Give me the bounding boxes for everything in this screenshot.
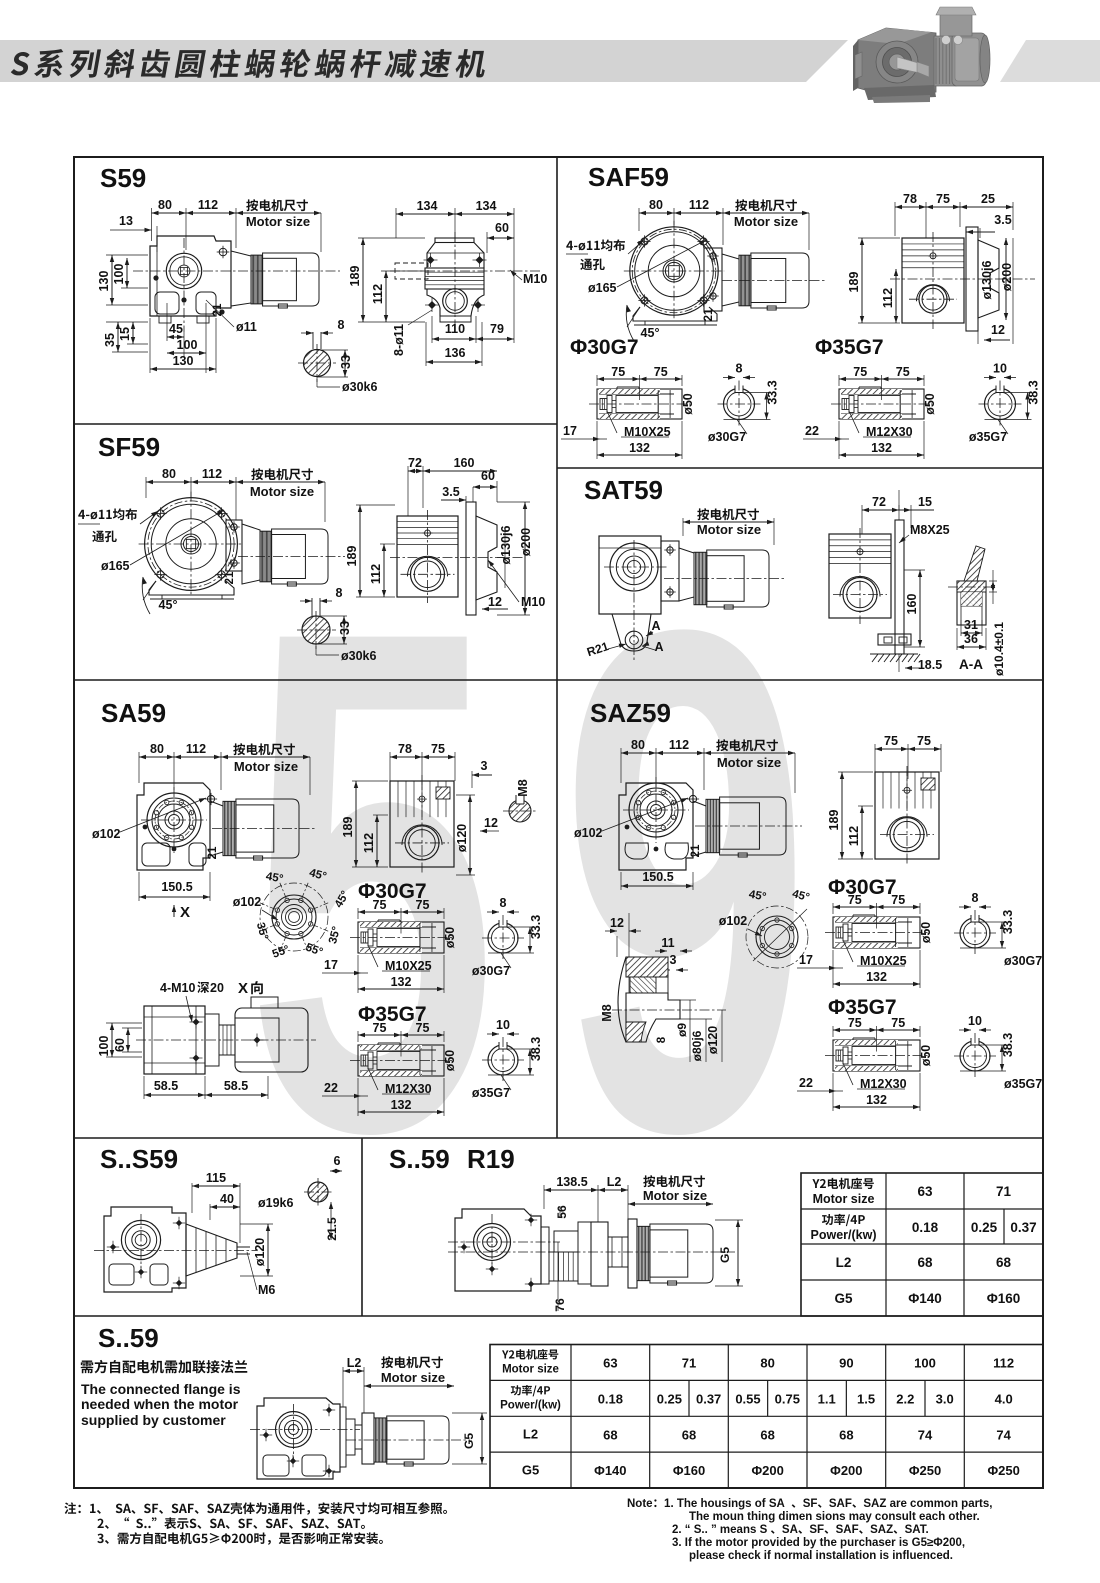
svg-text:132: 132 <box>871 441 892 455</box>
svg-text:Motor size: Motor size <box>234 759 298 774</box>
svg-text:60: 60 <box>113 1038 127 1052</box>
svg-text:21: 21 <box>703 308 715 321</box>
svg-text:2. “ S.. ” means S: 2. “ S.. ” means S <box>672 1524 768 1536</box>
svg-text:68: 68 <box>603 1427 617 1442</box>
svg-text:8: 8 <box>736 362 743 376</box>
svg-text:ø30k6: ø30k6 <box>342 380 377 394</box>
svg-text:40: 40 <box>220 1192 234 1206</box>
svg-text:4.0: 4.0 <box>995 1391 1013 1406</box>
svg-text:138.5: 138.5 <box>556 1175 587 1189</box>
svg-text:Φ140: Φ140 <box>594 1463 626 1478</box>
svg-text:75: 75 <box>891 1016 905 1030</box>
svg-text:please check if normal install: please check if normal installation is i… <box>689 1550 953 1562</box>
svg-text:12: 12 <box>484 816 498 830</box>
svg-text:8: 8 <box>500 896 507 910</box>
svg-text:21: 21 <box>212 303 224 316</box>
svg-text:132: 132 <box>866 970 887 984</box>
svg-text:Φ35G7: Φ35G7 <box>828 996 897 1019</box>
svg-text:72: 72 <box>872 495 886 509</box>
svg-text:112: 112 <box>669 738 689 752</box>
svg-text:110: 110 <box>445 322 465 336</box>
svg-text:71: 71 <box>996 1184 1012 1199</box>
svg-text:80: 80 <box>649 198 663 212</box>
svg-text:S..59: S..59 <box>98 1323 159 1353</box>
svg-text:L2: L2 <box>607 1175 622 1189</box>
svg-text:ø102: ø102 <box>719 914 748 928</box>
svg-text:189: 189 <box>341 817 355 838</box>
svg-text:Power/(kw): Power/(kw) <box>500 1399 561 1411</box>
svg-text:15: 15 <box>918 495 932 509</box>
svg-text:Motor size: Motor size <box>717 755 781 770</box>
svg-text:0.25: 0.25 <box>657 1391 682 1406</box>
svg-text:ø120: ø120 <box>455 824 469 853</box>
svg-text:ø130j6: ø130j6 <box>499 525 513 564</box>
svg-text:112: 112 <box>369 564 383 584</box>
svg-text:SAZ59: SAZ59 <box>590 698 671 728</box>
svg-text:ø102: ø102 <box>233 895 262 909</box>
svg-text:21: 21 <box>690 844 702 857</box>
svg-text:ø11: ø11 <box>236 320 257 334</box>
svg-text:R19: R19 <box>467 1144 515 1174</box>
svg-text:Power/(kw): Power/(kw) <box>811 1228 877 1242</box>
svg-text:L2: L2 <box>347 1356 362 1370</box>
svg-text:Motor size: Motor size <box>381 1370 445 1385</box>
svg-text:10: 10 <box>968 1014 982 1028</box>
svg-text:ø30k6: ø30k6 <box>341 649 376 663</box>
svg-text:75: 75 <box>373 898 387 912</box>
svg-text:ø165: ø165 <box>101 559 130 573</box>
svg-text:72: 72 <box>408 456 422 470</box>
svg-text:75: 75 <box>848 1016 862 1030</box>
svg-text:S..59: S..59 <box>389 1144 450 1174</box>
svg-text:75: 75 <box>896 365 910 379</box>
svg-text:100: 100 <box>177 338 198 352</box>
svg-text:75: 75 <box>853 365 867 379</box>
svg-text:150.5: 150.5 <box>642 870 673 884</box>
svg-text:A: A <box>654 640 663 654</box>
svg-text:112: 112 <box>362 833 376 853</box>
svg-text:60: 60 <box>495 221 509 235</box>
svg-text:ø30G7: ø30G7 <box>472 964 510 978</box>
svg-text:132: 132 <box>629 441 650 455</box>
svg-text:8: 8 <box>972 891 979 905</box>
svg-text:3.0: 3.0 <box>936 1391 954 1406</box>
svg-text:0.37: 0.37 <box>696 1391 721 1406</box>
svg-text:75: 75 <box>416 1021 430 1035</box>
svg-text:Motor size: Motor size <box>502 1364 559 1376</box>
svg-text:75: 75 <box>917 734 931 748</box>
svg-text:45°: 45° <box>641 326 660 340</box>
svg-text:ø35G7: ø35G7 <box>969 430 1007 444</box>
svg-text:Φ30G7: Φ30G7 <box>828 876 897 899</box>
svg-text:ø80j6: ø80j6 <box>690 1030 704 1061</box>
svg-text:3.5: 3.5 <box>994 213 1011 227</box>
svg-text:75: 75 <box>373 1021 387 1035</box>
svg-text:0.37: 0.37 <box>1010 1220 1036 1235</box>
svg-text:ø130j6: ø130j6 <box>980 260 994 299</box>
svg-text:ø10.4±0.1: ø10.4±0.1 <box>992 622 1006 676</box>
svg-text:25: 25 <box>981 192 995 206</box>
svg-text:SAT59: SAT59 <box>584 475 663 505</box>
svg-text:22: 22 <box>324 1081 338 1095</box>
svg-text:ø50: ø50 <box>923 393 937 415</box>
svg-text:80: 80 <box>158 198 172 212</box>
svg-text:75: 75 <box>431 742 445 756</box>
svg-text:G5: G5 <box>834 1291 853 1306</box>
svg-text:90: 90 <box>839 1356 853 1371</box>
svg-text:22: 22 <box>805 424 819 438</box>
svg-text:L2: L2 <box>836 1255 852 1270</box>
svg-text:8: 8 <box>656 1036 668 1043</box>
svg-text:M8: M8 <box>600 1004 614 1021</box>
svg-text:SAF: SAF <box>829 1498 852 1510</box>
svg-text:ø50: ø50 <box>919 922 933 944</box>
svg-text:Φ140: Φ140 <box>908 1291 942 1306</box>
svg-text:134: 134 <box>476 199 497 213</box>
svg-text:0.55: 0.55 <box>735 1391 760 1406</box>
svg-text:130: 130 <box>97 271 111 292</box>
svg-text:112: 112 <box>689 198 709 212</box>
svg-text:58.5: 58.5 <box>224 1079 248 1093</box>
svg-text:SF: SF <box>809 1524 824 1536</box>
svg-text:3: 3 <box>670 953 677 967</box>
svg-text:80: 80 <box>760 1356 774 1371</box>
svg-text:15: 15 <box>118 327 132 341</box>
svg-text:1.1: 1.1 <box>818 1391 836 1406</box>
svg-text:Φ160: Φ160 <box>987 1291 1021 1306</box>
svg-text:11: 11 <box>661 936 674 950</box>
svg-text:78: 78 <box>398 742 412 756</box>
svg-text:SA59: SA59 <box>101 698 166 728</box>
svg-text:100: 100 <box>112 264 126 285</box>
svg-text:36: 36 <box>964 632 978 646</box>
svg-text:45: 45 <box>169 322 183 336</box>
svg-text:56: 56 <box>555 1205 569 1219</box>
svg-text:112: 112 <box>186 742 206 756</box>
svg-text:68: 68 <box>760 1427 774 1442</box>
svg-text:SA: SA <box>782 1524 798 1536</box>
svg-text:20: 20 <box>210 981 224 995</box>
svg-text:17: 17 <box>799 953 813 967</box>
svg-text:SAF59: SAF59 <box>588 162 669 192</box>
svg-text:Φ200: Φ200 <box>751 1463 783 1478</box>
svg-text:ø35G7: ø35G7 <box>472 1086 510 1100</box>
svg-text:75: 75 <box>611 365 625 379</box>
svg-text:needed when the motor: needed when the motor <box>81 1396 239 1412</box>
svg-text:112: 112 <box>202 467 222 481</box>
svg-text:45°: 45° <box>159 598 178 612</box>
svg-text:160: 160 <box>454 456 475 470</box>
svg-text:ø102: ø102 <box>92 827 121 841</box>
svg-text:M10: M10 <box>521 595 545 609</box>
svg-text:ø30G7: ø30G7 <box>1004 954 1042 968</box>
svg-text:75: 75 <box>884 734 898 748</box>
svg-text:ø9: ø9 <box>675 1023 689 1037</box>
svg-text:The connected flange is: The connected flange is <box>81 1381 241 1397</box>
svg-text:79: 79 <box>490 322 504 336</box>
svg-text:A: A <box>651 619 660 633</box>
svg-text:112: 112 <box>993 1356 1014 1371</box>
svg-text:SAF: SAF <box>836 1524 859 1536</box>
svg-text:ø50: ø50 <box>681 393 695 415</box>
svg-text:G5: G5 <box>718 1247 732 1263</box>
svg-text:Φ250: Φ250 <box>909 1463 941 1478</box>
svg-text:0.75: 0.75 <box>775 1391 800 1406</box>
svg-text:1.5: 1.5 <box>857 1391 875 1406</box>
svg-text:100: 100 <box>914 1356 936 1371</box>
svg-text:supplied by customer: supplied by customer <box>81 1412 226 1428</box>
svg-text:Motor size: Motor size <box>813 1192 875 1206</box>
svg-text:1. The housings of SA: 1. The housings of SA <box>664 1498 785 1510</box>
svg-text:63: 63 <box>917 1184 933 1199</box>
svg-text:L2: L2 <box>523 1427 538 1442</box>
svg-text:76: 76 <box>553 1298 567 1312</box>
svg-text:74: 74 <box>996 1427 1011 1442</box>
svg-text:M8X25: M8X25 <box>910 523 950 537</box>
svg-text:Φ250: Φ250 <box>987 1463 1019 1478</box>
svg-text:6: 6 <box>334 1154 341 1168</box>
svg-text:ø50: ø50 <box>443 1050 457 1072</box>
svg-text:18.5: 18.5 <box>918 658 942 672</box>
svg-text:33: 33 <box>339 355 353 369</box>
svg-text:58.5: 58.5 <box>154 1079 178 1093</box>
svg-text:Motor size: Motor size <box>697 522 761 537</box>
svg-text:Motor size: Motor size <box>246 214 310 229</box>
svg-text:ø120: ø120 <box>706 1026 720 1055</box>
svg-text:8: 8 <box>338 318 345 332</box>
svg-text:189: 189 <box>847 272 861 293</box>
svg-text:68: 68 <box>682 1427 696 1442</box>
svg-text:80: 80 <box>631 738 645 752</box>
svg-text:17: 17 <box>324 958 338 972</box>
svg-text:132: 132 <box>866 1093 887 1107</box>
svg-text:S59: S59 <box>100 163 146 193</box>
svg-text:ø102: ø102 <box>574 826 603 840</box>
svg-text:68: 68 <box>996 1255 1012 1270</box>
svg-text:SAT.: SAT. <box>905 1524 929 1536</box>
svg-text:132: 132 <box>391 975 412 989</box>
svg-text:160: 160 <box>905 594 919 615</box>
svg-text:68: 68 <box>839 1427 853 1442</box>
svg-text:78: 78 <box>903 192 917 206</box>
svg-text:3.5: 3.5 <box>442 485 459 499</box>
svg-text:75: 75 <box>936 192 950 206</box>
svg-text:22: 22 <box>799 1076 813 1090</box>
svg-text:112: 112 <box>371 284 385 304</box>
svg-text:136: 136 <box>445 346 466 360</box>
svg-text:189: 189 <box>827 810 841 831</box>
svg-text:75: 75 <box>654 365 668 379</box>
svg-text:75: 75 <box>848 893 862 907</box>
svg-text:3: 3 <box>481 759 488 773</box>
svg-text:M6: M6 <box>258 1283 275 1297</box>
svg-text:Φ35G7: Φ35G7 <box>815 336 884 359</box>
svg-text:80: 80 <box>150 742 164 756</box>
svg-text:The moun thing dimen sions may: The moun thing dimen sions may consult e… <box>689 1511 980 1523</box>
svg-text:134: 134 <box>417 199 438 213</box>
svg-text:2.2: 2.2 <box>896 1391 914 1406</box>
svg-text:35: 35 <box>103 333 117 347</box>
svg-text:21.5: 21.5 <box>325 1217 339 1241</box>
svg-text:Φ160: Φ160 <box>673 1463 705 1478</box>
svg-text:Φ30G7: Φ30G7 <box>570 336 639 359</box>
svg-text:ø120: ø120 <box>253 1238 267 1267</box>
svg-text:13: 13 <box>119 214 133 228</box>
svg-text:4-M10: 4-M10 <box>160 981 195 995</box>
svg-text:112: 112 <box>847 826 861 846</box>
svg-text:SF: SF <box>803 1498 818 1510</box>
svg-text:ø165: ø165 <box>588 281 617 295</box>
svg-text:189: 189 <box>348 266 362 287</box>
svg-text:21: 21 <box>207 846 219 859</box>
svg-text:S..S59: S..S59 <box>100 1144 178 1174</box>
svg-text:21: 21 <box>224 571 236 584</box>
svg-text:Φ200: Φ200 <box>830 1463 862 1478</box>
svg-text:100: 100 <box>97 1036 111 1057</box>
svg-text:A-A: A-A <box>959 657 983 672</box>
svg-text:G5: G5 <box>522 1463 539 1478</box>
svg-text:31: 31 <box>964 618 978 632</box>
svg-text:112: 112 <box>881 288 895 308</box>
svg-text:33: 33 <box>338 621 352 635</box>
svg-text:115: 115 <box>206 1171 226 1185</box>
svg-text:ø200: ø200 <box>519 528 533 557</box>
svg-text:X: X <box>180 904 190 921</box>
svg-text:Motor size: Motor size <box>250 484 314 499</box>
svg-text:71: 71 <box>682 1356 696 1371</box>
svg-text:112: 112 <box>198 198 218 212</box>
svg-text:Motor size: Motor size <box>643 1188 707 1203</box>
svg-text:SF59: SF59 <box>98 432 160 462</box>
svg-text:SAZ are common parts,: SAZ are common parts, <box>863 1498 992 1510</box>
svg-text:9: 9 <box>560 482 811 1280</box>
svg-text:0.25: 0.25 <box>971 1220 998 1235</box>
svg-text:12: 12 <box>991 323 1005 337</box>
svg-text:ø35G7: ø35G7 <box>1004 1077 1042 1091</box>
svg-text:132: 132 <box>391 1098 412 1112</box>
svg-text:12: 12 <box>610 916 624 930</box>
svg-text:ø30G7: ø30G7 <box>708 430 746 444</box>
svg-text:ø50: ø50 <box>443 927 457 949</box>
svg-text:130: 130 <box>173 354 194 368</box>
svg-text:17: 17 <box>563 424 577 438</box>
svg-text:60: 60 <box>481 469 495 483</box>
svg-text:74: 74 <box>918 1427 933 1442</box>
svg-text:M10: M10 <box>523 272 547 286</box>
svg-text:ø50: ø50 <box>919 1045 933 1067</box>
svg-text:X: X <box>238 980 248 997</box>
svg-text:75: 75 <box>416 898 430 912</box>
svg-text:8: 8 <box>336 586 343 600</box>
svg-text:150.5: 150.5 <box>161 880 192 894</box>
svg-text:Motor size: Motor size <box>734 214 798 229</box>
svg-text:ø200: ø200 <box>1000 263 1014 292</box>
svg-text:ø19k6: ø19k6 <box>258 1196 293 1210</box>
svg-text:M8: M8 <box>516 779 530 796</box>
svg-text:SAZ: SAZ <box>870 1524 893 1536</box>
svg-text:12: 12 <box>488 595 502 609</box>
svg-text:3. If the motor provided by t: 3. If the motor provided by the purchase… <box>672 1537 965 1549</box>
svg-text:68: 68 <box>917 1255 933 1270</box>
svg-text:80: 80 <box>162 467 176 481</box>
svg-text:Note: Note <box>627 1498 653 1510</box>
svg-text:0.18: 0.18 <box>598 1391 623 1406</box>
svg-text:75: 75 <box>891 893 905 907</box>
svg-text:10: 10 <box>993 362 1007 376</box>
svg-text:G5: G5 <box>462 1433 476 1449</box>
svg-text:10: 10 <box>496 1018 510 1032</box>
svg-text:189: 189 <box>345 546 359 567</box>
svg-text:8-ø11: 8-ø11 <box>392 324 406 356</box>
svg-text:0.18: 0.18 <box>912 1220 939 1235</box>
svg-text:63: 63 <box>603 1356 617 1371</box>
